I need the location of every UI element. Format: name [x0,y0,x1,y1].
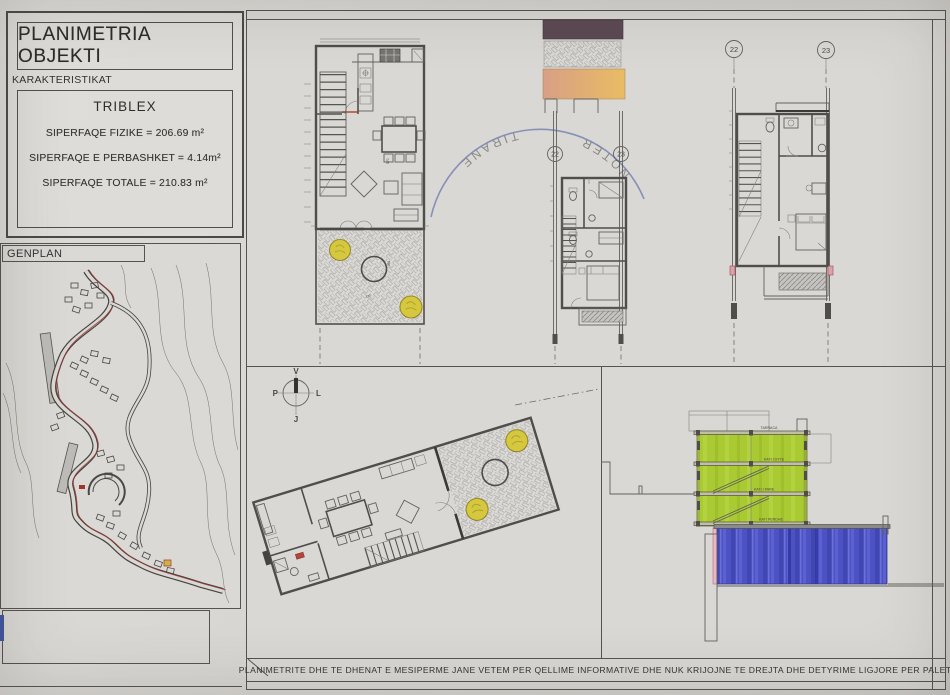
svg-text:NOTER: NOTER [577,134,633,181]
rotated-unit [248,418,559,596]
building-section: TARRACA KATI I DYTE KATI I PARE KATI PER [601,367,945,658]
scanned-plan-sheet: PLANIMETRIA OBJEKTI KARAKTERISTIKAT TRIB… [0,0,950,695]
compass-east: L [316,389,321,398]
compass-west: P [273,389,279,398]
border-line [0,686,242,687]
label-floor1: KATI I PARE [754,488,775,492]
axis-bubble-22: 22 [730,45,738,54]
stamp-word-1: NOTER [577,134,633,181]
strip-line-bottom [247,681,945,682]
genplan-panel: GENPLAN [0,243,241,609]
label-roof: TARRACA [761,426,779,430]
genplan-label: GENPLAN [2,245,145,262]
blue-edge-mark [0,615,4,641]
floorplan-rotated: V L J P [247,367,601,658]
area-shared: SIPERFAQE E PERBASHKET = 4.14m² [18,153,232,164]
label-floor2: KATI I DYTE [764,458,785,462]
label-ground-floor: KATI PERDHE [759,518,783,522]
stamp-word-2: TIRANE [456,129,519,173]
axis-bubble-23: 23 [822,46,830,55]
strip-line-top [247,658,945,659]
site-plan-drawing [1,263,238,606]
compass-north: V [293,367,299,376]
floorplan-ground: 570 381 120 [294,26,446,366]
area-total: SIPERFAQE TOTALE = 210.83 m² [18,178,232,189]
svg-text:TIRANE: TIRANE [456,129,519,173]
floorplan-upper: 22 23 [706,21,946,366]
notary-stamp: NOTER TIRANE [426,101,648,241]
unit-type: TRIBLEX [18,99,232,114]
area-physical: SIPERFAQE FIZIKE = 206.69 m² [18,128,232,139]
characteristics-label: KARAKTERISTIKAT [12,74,112,86]
sheet-title: PLANIMETRIA OBJEKTI [17,22,233,70]
main-drawing-frame: PLANIMETRITE DHE TE DHENAT E MESIPERME J… [246,10,946,690]
characteristics-box: TRIBLEX SIPERFAQE FIZIKE = 206.69 m² SIP… [17,90,233,228]
compass-south: J [294,415,298,424]
revision-box [2,610,210,664]
compass-rose: V L J P [273,367,321,424]
dim-dining: 570 [386,158,390,164]
title-block: PLANIMETRIA OBJEKTI KARAKTERISTIKAT TRIB… [6,11,244,238]
disclaimer-text: PLANIMETRITE DHE TE DHENAT E MESIPERME J… [247,660,945,680]
dim-terrace: 381 [387,260,391,266]
